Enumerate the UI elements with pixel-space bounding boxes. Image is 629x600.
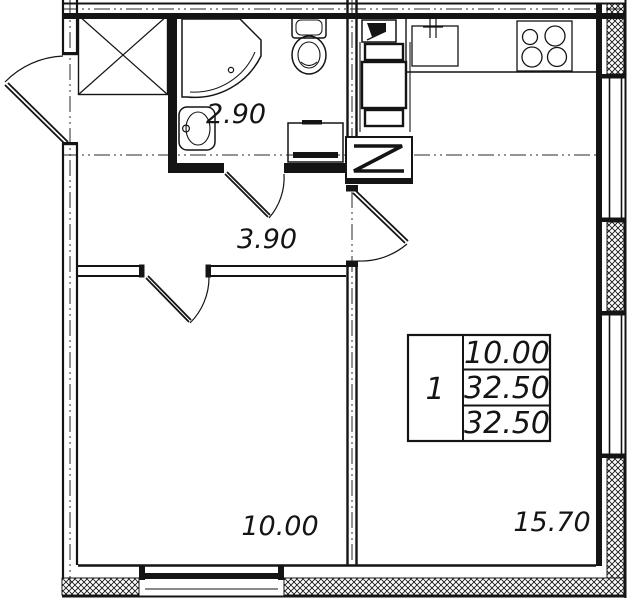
table-total-area: 32.50 bbox=[464, 371, 550, 406]
table-living-area: 10.00 bbox=[464, 336, 550, 371]
table-rooms-count: 1 bbox=[425, 372, 444, 407]
apartment-info-table: 1 10.00 32.50 32.50 bbox=[408, 335, 550, 441]
living-kitchen-area-label: 15.70 bbox=[513, 507, 590, 538]
bedroom-area-label: 10.00 bbox=[241, 511, 318, 542]
floor-plan-drawing: 1 10.00 32.50 32.50 2.90 3.90 10.00 15.7… bbox=[0, 0, 629, 600]
hallway-area-label: 3.90 bbox=[237, 224, 297, 255]
vent-shaft bbox=[346, 137, 412, 184]
bathroom-area-label: 2.90 bbox=[206, 99, 266, 130]
floor-plan: 1 10.00 32.50 32.50 2.90 3.90 10.00 15.7… bbox=[0, 0, 629, 600]
table-total-area-reduced: 32.50 bbox=[464, 406, 550, 441]
